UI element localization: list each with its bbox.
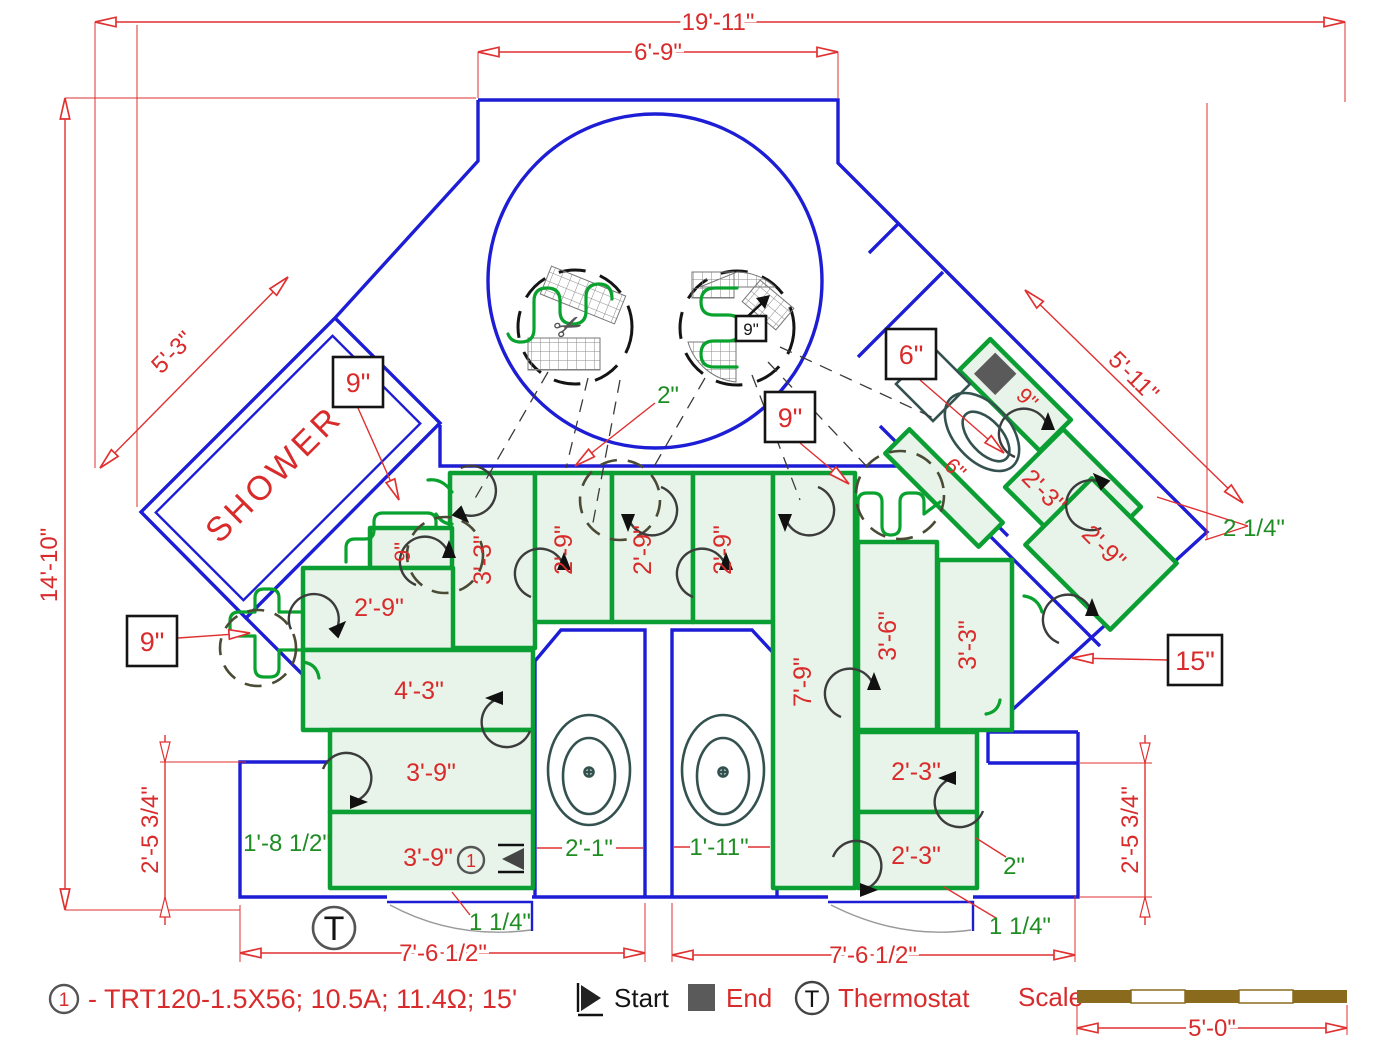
detail-9-label: 9" <box>743 320 759 339</box>
mat-label: 3'-3" <box>469 535 497 585</box>
legend-end: End <box>726 983 772 1013</box>
callout-9-label: 9" <box>778 403 803 433</box>
mat-label: 2'-9" <box>550 525 578 575</box>
dim-left-overall: 14'-10" <box>36 528 63 602</box>
start-icon <box>578 983 603 1015</box>
mat-label: 2'-3" <box>891 758 941 786</box>
dim-scale-length: 5'-0" <box>1188 1015 1236 1042</box>
mat-label: 7'-9" <box>789 657 817 707</box>
door-right <box>828 902 973 931</box>
mat-label: 9" <box>390 542 415 562</box>
dim-wing-side: 5'-11" <box>1103 346 1164 407</box>
mat-label: 2'-9" <box>709 525 737 575</box>
callout-9-label: 9" <box>346 368 371 398</box>
legend-circuit-number: 1 <box>59 990 70 1011</box>
legend: 1 - TRT120-1.5X56; 10.5A; 11.4Ω; 15' Sta… <box>50 982 1347 1015</box>
floor-heating-plan: ✂ 9" <box>0 0 1400 1049</box>
toilet-right <box>682 715 764 825</box>
door-right-swing <box>831 905 971 932</box>
mat-label: 4'-3" <box>394 677 444 705</box>
note-top-gap: 2" <box>657 382 679 409</box>
dim-top-alcove: 6'-9" <box>634 39 682 66</box>
plan-canvas: ✂ 9" <box>0 0 1400 1049</box>
legend-spec: - TRT120-1.5X56; 10.5A; 11.4Ω; 15' <box>88 984 517 1014</box>
mat-label: 3'-9" <box>406 759 456 787</box>
circuit-number: 1 <box>466 851 476 871</box>
mat-label: 2'-9" <box>629 525 657 575</box>
thermostat-t-plan: T <box>324 910 345 948</box>
mat-label: 2'-3" <box>891 842 941 870</box>
callout-9-label: 9" <box>140 627 165 657</box>
callout-15-label: 15" <box>1175 646 1215 676</box>
shower-room-label: SHOWER <box>198 398 350 550</box>
note-door-left: 1 1/4" <box>469 909 531 936</box>
mat-label: 3'-6" <box>874 611 902 661</box>
scale-bar <box>1077 990 1347 1003</box>
detail-left: ✂ <box>508 266 632 384</box>
dim-top-overall: 19'-11" <box>682 9 755 36</box>
dim-shower-side: 5'-3" <box>146 326 199 379</box>
cable-u <box>858 493 940 540</box>
dim-bottom-right: 7'-6 1/2" <box>829 942 917 969</box>
note-door-right: 1 1/4" <box>989 913 1051 940</box>
legend-thermostat: Thermostat <box>838 983 970 1013</box>
callout-6-label: 6" <box>899 340 924 370</box>
note-right-gap: 2" <box>1003 853 1025 880</box>
dim-right-lower: 2'-5 3/4" <box>1117 786 1144 874</box>
scale-title: Scale <box>1018 982 1083 1012</box>
note-right-stub: 1'-11" <box>689 834 748 861</box>
legend-thermostat-t: T <box>805 986 820 1013</box>
legend-start: Start <box>614 983 670 1013</box>
note-corner-gap: 2 1/4" <box>1223 515 1285 542</box>
dim-left-lower: 2'-5 3/4" <box>137 786 164 874</box>
mat-mesh-piece <box>692 272 734 298</box>
note-left-stub: 2'-1" <box>565 835 613 862</box>
dim-bottom-left: 7'-6 1/2" <box>399 940 487 967</box>
wall-notch <box>869 224 898 253</box>
note-niche-width: 1'-8 1/2" <box>243 830 331 857</box>
mat-label: 3'-9" <box>403 844 453 872</box>
mat-6in-wing <box>885 429 1002 546</box>
detail-right: 9" <box>680 271 794 385</box>
mat-label: 2'-9" <box>354 594 404 622</box>
cable-hook-wing <box>1024 596 1042 612</box>
mat-label: 3'-3" <box>954 620 982 670</box>
toilet-left <box>548 715 630 825</box>
end-icon <box>688 984 715 1011</box>
